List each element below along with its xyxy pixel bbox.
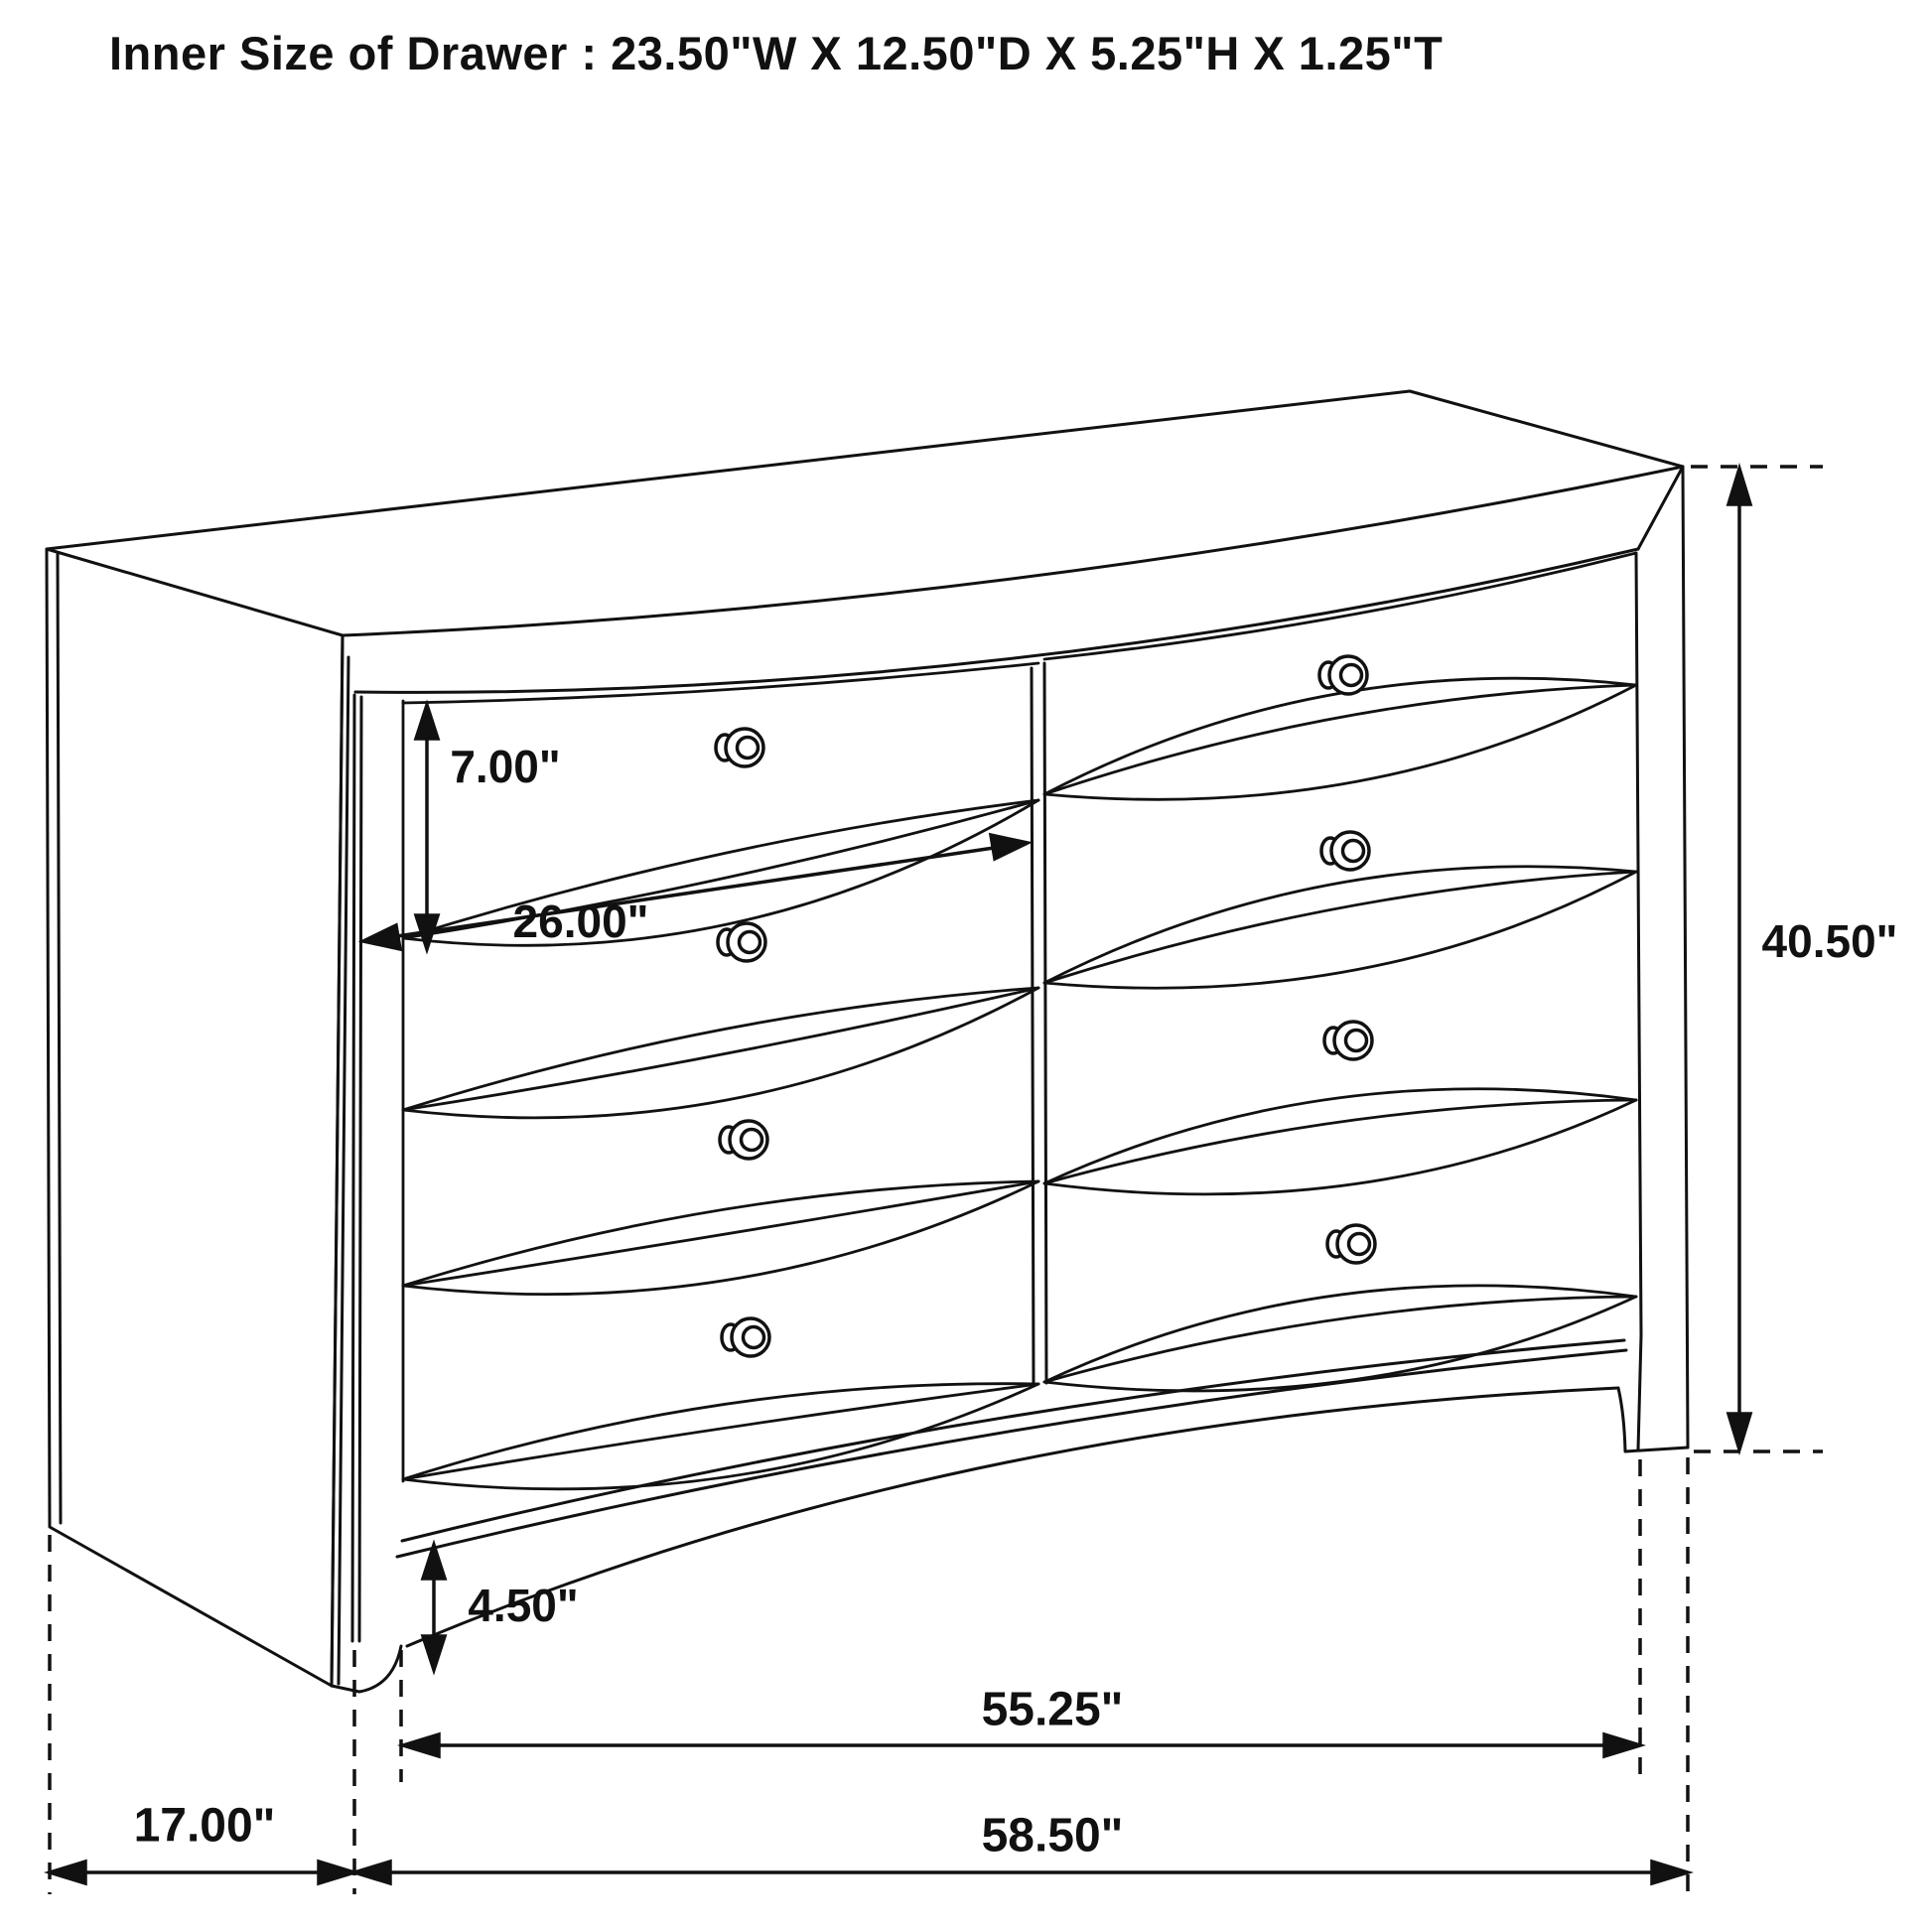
knob <box>1321 832 1369 870</box>
dim-base-height-arrow <box>423 1545 445 1670</box>
right-outer-edge <box>1683 467 1688 1448</box>
dim-front-width-arrow <box>403 1734 1640 1756</box>
dim-label-overall-height: 40.50" <box>1762 914 1898 968</box>
left-side-panel <box>47 549 343 1686</box>
right-foot <box>1618 1388 1688 1451</box>
dim-overall-width-arrow <box>354 1862 1688 1883</box>
under-edge <box>407 1388 1618 1646</box>
carcass-outline <box>47 391 1688 1686</box>
knob <box>722 1318 769 1356</box>
dim-label-drawer-height: 7.00" <box>450 740 560 793</box>
dim-drawer-height-arrow <box>416 705 438 949</box>
center-divider <box>1032 663 1046 1384</box>
dim-label-base-height: 4.50" <box>468 1579 578 1632</box>
top-bevel-edge <box>355 549 1638 692</box>
knob <box>718 923 765 961</box>
knob <box>1319 656 1367 694</box>
dim-label-drawer-width: 26.00" <box>513 895 649 948</box>
dim-label-overall-width: 58.50" <box>982 1809 1124 1863</box>
left-foot <box>332 1646 401 1692</box>
knob <box>1324 1022 1372 1059</box>
diagram-canvas: Inner Size of Drawer : 23.50"W X 12.50"D… <box>0 0 1932 1932</box>
knob <box>720 1121 767 1159</box>
left-side-panel-inner-edge <box>58 554 61 1523</box>
top-corner-bevel <box>1638 467 1683 549</box>
dim-side-depth-arrow <box>50 1862 354 1883</box>
dresser-line-drawing <box>0 0 1932 1932</box>
knob <box>1327 1225 1375 1263</box>
right-inner-edge <box>1636 553 1641 1335</box>
dim-label-side-depth: 17.00" <box>134 1799 276 1854</box>
dim-overall-height-arrow <box>1728 469 1750 1449</box>
knob <box>716 729 763 766</box>
dashed-reference-lines <box>50 467 1823 1894</box>
dim-drawer-width-arrow <box>363 835 1028 949</box>
dim-label-front-width: 55.25" <box>982 1683 1124 1737</box>
